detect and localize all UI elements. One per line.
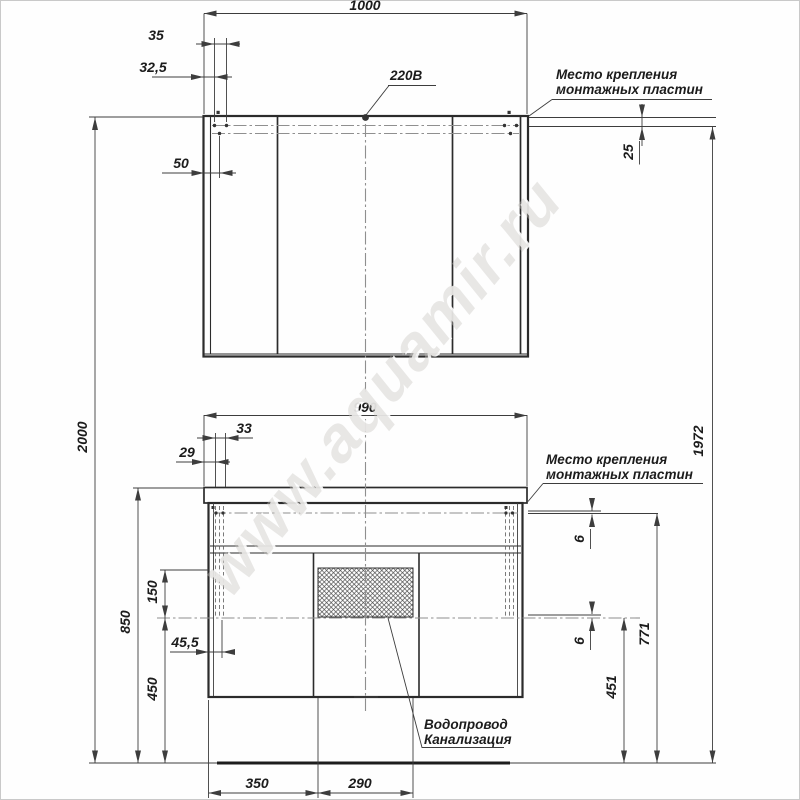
- dim-45-5: 45,5: [170, 634, 198, 650]
- dim-150: 150: [144, 580, 160, 604]
- mount-plate-mark-right: [505, 506, 508, 509]
- dim-6-lower: 6: [571, 637, 587, 645]
- dim-50: 50: [173, 155, 189, 171]
- dim-290: 290: [347, 775, 372, 791]
- mount-hole: [214, 511, 217, 514]
- technical-drawing: 1000 35 32,5 50 25 2000 1972 220В: [0, 0, 800, 800]
- mount-bottom-label-1: Место крепления: [546, 452, 667, 467]
- dim-850: 850: [117, 610, 133, 634]
- dim-35: 35: [148, 27, 164, 43]
- mount-hole: [218, 132, 221, 135]
- mount-plate-mark-left: [212, 506, 215, 509]
- power-label: 220В: [389, 68, 423, 83]
- dim-33: 33: [236, 420, 252, 436]
- dim-771: 771: [636, 622, 652, 646]
- dim-29: 29: [178, 444, 195, 460]
- mount-top-label-1: Место крепления: [556, 67, 677, 82]
- mount-hole: [509, 132, 512, 135]
- mount-bottom-label-2: монтажных пластин: [546, 467, 693, 482]
- mount-hole: [213, 124, 216, 127]
- mount-hole: [515, 124, 518, 127]
- dim-1972: 1972: [690, 425, 706, 456]
- mount-hole: [225, 124, 228, 127]
- dim-1000: 1000: [349, 0, 380, 13]
- dim-350: 350: [245, 775, 269, 791]
- dim-25: 25: [620, 144, 636, 161]
- plumbing-label-2: Канализация: [424, 732, 512, 747]
- dim-2000: 2000: [74, 421, 90, 453]
- mount-hole: [511, 511, 514, 514]
- installation-drawing-page: 1000 35 32,5 50 25 2000 1972 220В: [0, 0, 800, 800]
- mount-hole: [221, 511, 224, 514]
- dim-6-upper: 6: [571, 535, 587, 543]
- mount-top-label-2: монтажных пластин: [556, 82, 703, 97]
- plumbing-label-1: Водопровод: [424, 717, 508, 732]
- mount-plate-mark-left: [217, 111, 220, 114]
- power-outlet-point: [362, 114, 369, 121]
- dim-451: 451: [603, 675, 619, 700]
- dim-450: 450: [144, 677, 160, 702]
- mount-plate-mark-right: [508, 111, 511, 114]
- mount-hole: [504, 511, 507, 514]
- dim-32-5: 32,5: [139, 59, 166, 75]
- mount-hole: [503, 124, 506, 127]
